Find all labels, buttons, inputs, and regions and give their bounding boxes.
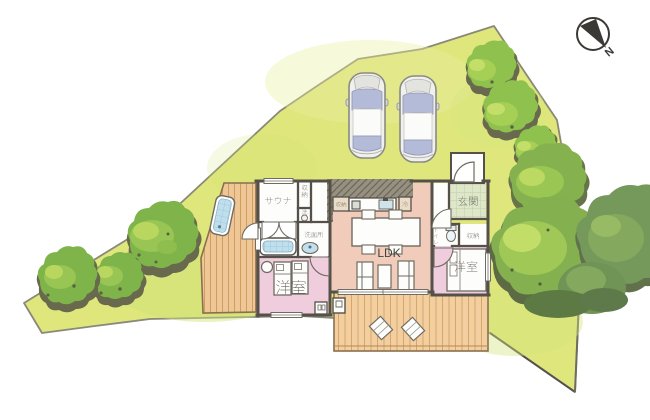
svg-text:LDK: LDK xyxy=(377,246,400,260)
